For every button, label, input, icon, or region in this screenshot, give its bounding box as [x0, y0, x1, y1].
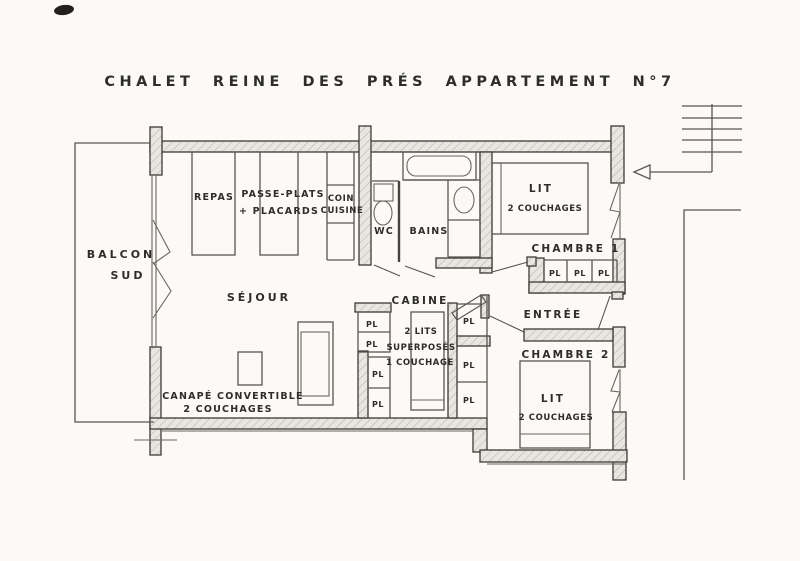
corridor-outline [684, 210, 741, 480]
wall-cabine-closet-top [355, 303, 391, 312]
label-chambre2: CHAMBRE 2 [521, 349, 610, 361]
label-lit1: LIT [529, 183, 553, 195]
wall-mid-stub [481, 295, 489, 318]
balcony-railing [75, 143, 154, 422]
window-chambre1 [610, 183, 620, 239]
wall-south-chambre2 [480, 450, 627, 462]
chambre1-door-leaf [492, 262, 528, 272]
label-lits-superposes-2: SUPERPOSÉS [386, 341, 455, 353]
label-pl: PL [366, 340, 378, 349]
label-balcon-sud: SUD [111, 269, 146, 282]
wall-stub-northwest [150, 127, 162, 175]
wall-north [150, 141, 622, 152]
wc-room [372, 181, 399, 262]
label-lit2: LIT [541, 393, 565, 405]
label-pl: PL [549, 269, 561, 278]
label-bains: BAINS [410, 226, 449, 237]
label-pl: PL [366, 320, 378, 329]
label-coin: COIN [328, 194, 354, 204]
wall-chambre2-north [524, 329, 613, 341]
label-wc: WC [374, 226, 394, 237]
walls [150, 126, 627, 480]
staircase-icon [682, 104, 742, 172]
entry-door-leaf [598, 296, 610, 330]
wc-door-leaf [374, 265, 400, 276]
label-pl: PL [598, 269, 610, 278]
window-chambre2 [611, 369, 620, 413]
label-pl: PL [372, 400, 384, 409]
plan-title: CHALET REINE DES PRÉS APPARTEMENT N°7 [104, 73, 675, 90]
wall-wc-west [359, 126, 371, 265]
bathtub [407, 156, 471, 176]
label-cabine: CABINE [392, 295, 449, 307]
label-pl: PL [463, 317, 475, 326]
passe-plats-cabinet [260, 152, 298, 255]
dining-table [192, 152, 235, 255]
toilet-bowl [374, 201, 392, 225]
coffee-table [238, 352, 262, 385]
scan-artifact-mark [53, 4, 74, 17]
label-lit1-couchages: 2 COUCHAGES [508, 204, 583, 214]
label-entree: ENTRÉE [524, 308, 583, 321]
label-balcon: BALCON [87, 248, 156, 261]
label-pl: PL [372, 370, 384, 379]
floor-plan-sheet: CHALET REINE DES PRÉS APPARTEMENT N°7 BA… [0, 0, 800, 561]
window-casement-icon [610, 184, 620, 238]
wall-cabine-closet-left [358, 351, 368, 418]
sink-basin [454, 187, 474, 213]
label-passe-plats: PASSE-PLATS [241, 189, 324, 200]
toilet-tank [374, 184, 393, 201]
label-lits-superposes-3: 1 COUCHAGE [386, 358, 454, 368]
label-pl: PL [463, 361, 475, 370]
bathroom [403, 152, 480, 257]
wall-west-sejour [150, 347, 161, 455]
wall-chambre1-south [529, 282, 625, 293]
door-jamb-entree [612, 292, 623, 299]
label-lit2-couchages: 2 COUCHAGES [519, 413, 594, 423]
label-cuisine: CUISINE [321, 206, 364, 216]
chambre2-door-leaf [490, 316, 524, 332]
bed-chambre1 [492, 163, 588, 234]
wall-bains-east [480, 152, 492, 273]
window-casement-icon [611, 370, 620, 412]
label-chambre1: CHAMBRE 1 [531, 243, 620, 255]
label-canape: CANAPÉ CONVERTIBLE [162, 390, 304, 402]
bains-door-leaf [405, 266, 435, 277]
label-pl: PL [463, 396, 475, 405]
label-canape-couchages: 2 COUCHAGES [183, 404, 272, 415]
wall-mid-bar [457, 336, 490, 346]
wall-step [473, 429, 487, 452]
label-repas: REPAS [194, 192, 234, 203]
label-lits-superposes-1: 2 LITS [405, 327, 438, 337]
wall-bains-south [436, 258, 492, 268]
wall-stub-northeast [611, 126, 624, 183]
door-jamb-chambre1 [527, 257, 536, 266]
wall-east-chambre2 [613, 412, 626, 480]
label-pl: PL [574, 269, 586, 278]
label-placards: + PLACARDS [239, 206, 319, 217]
wall-south-sejour [150, 418, 487, 429]
label-sejour: SÉJOUR [227, 291, 291, 304]
french-window-sejour [152, 175, 171, 347]
wall-east-entree [613, 327, 625, 367]
floor-plan-drawing: CHALET REINE DES PRÉS APPARTEMENT N°7 BA… [0, 0, 800, 561]
entrance-arrow-icon [634, 165, 712, 179]
